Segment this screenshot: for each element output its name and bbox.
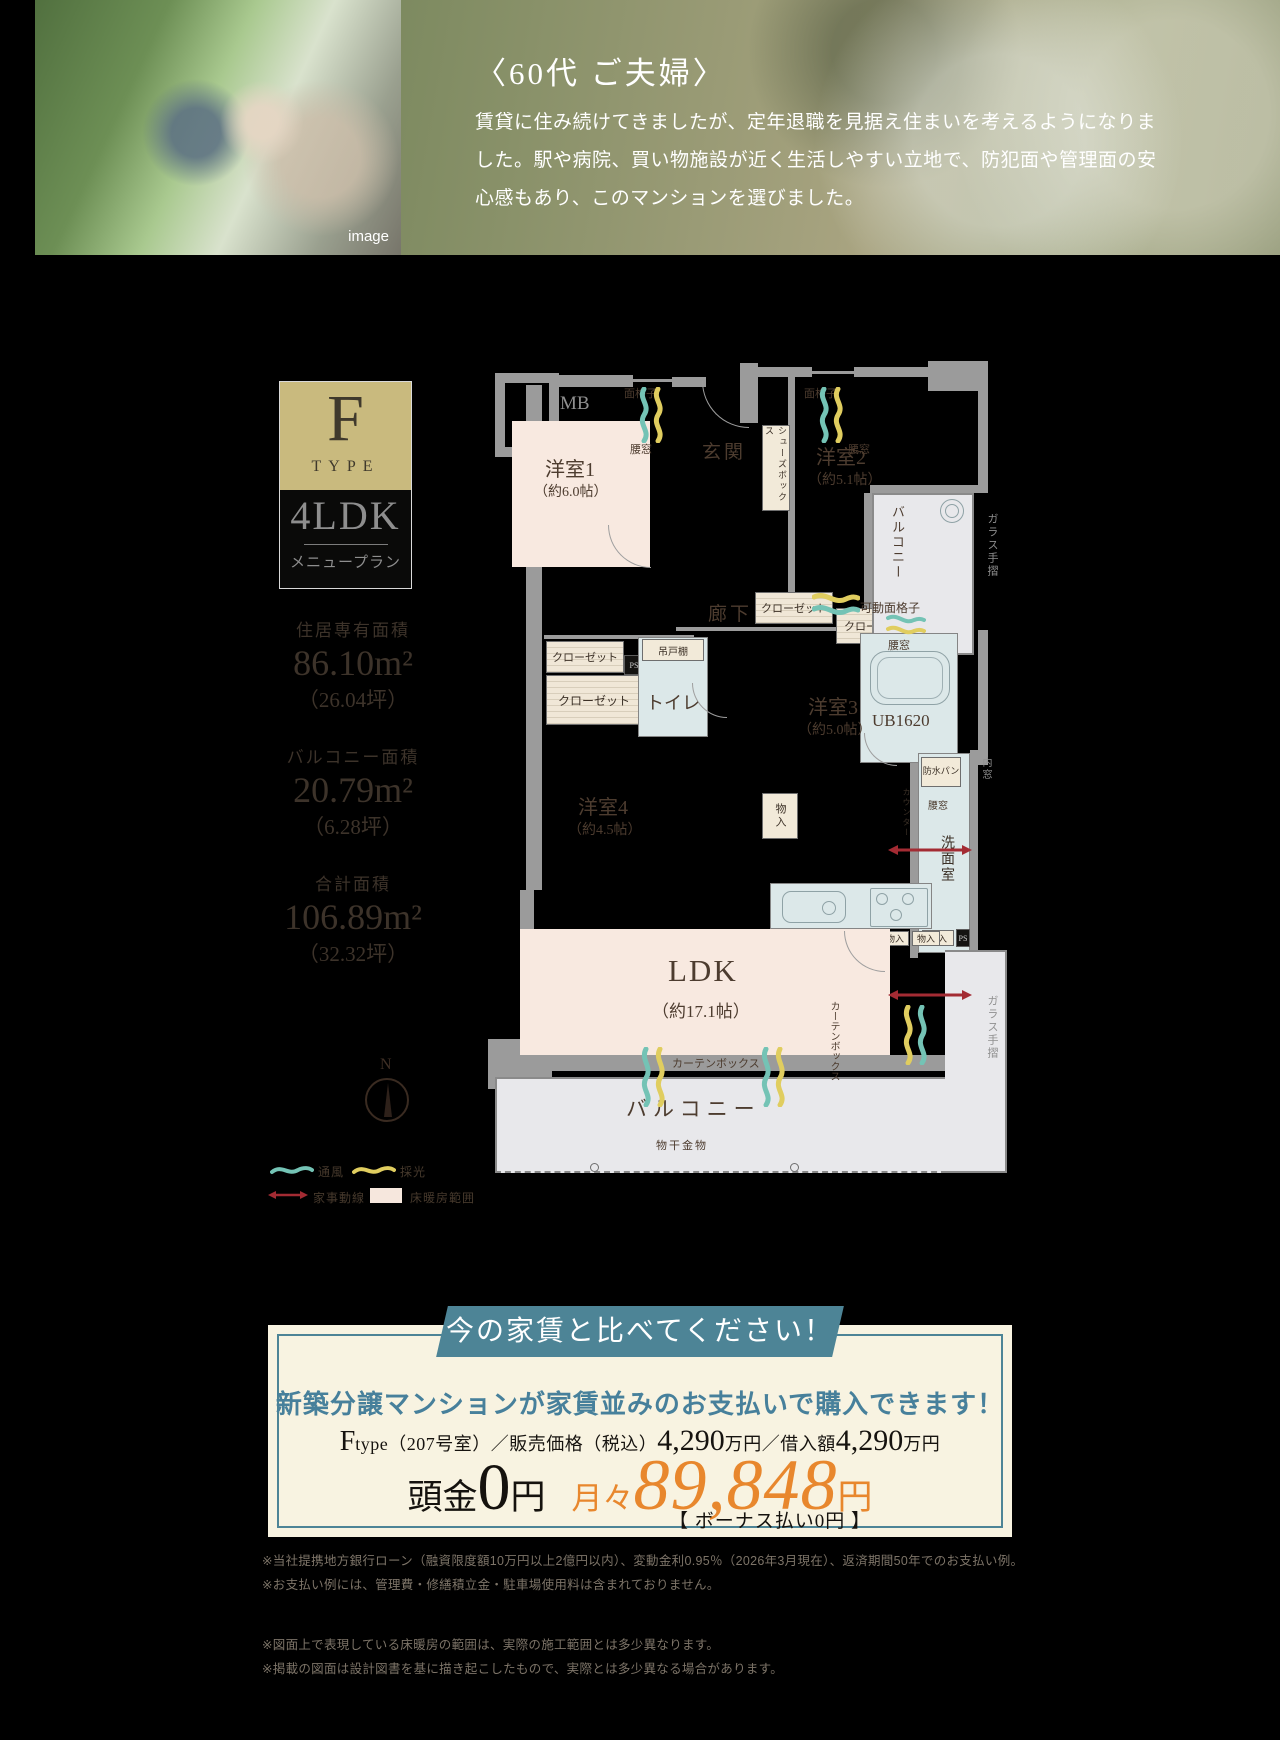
- room4-label: 洋室4: [578, 791, 628, 820]
- window-line: [632, 379, 672, 382]
- floor-plan: 洋室1 （約6.0帖） MB 面格子 腰窓 玄関 シューズボックス 洋室2 （約…: [440, 345, 1085, 1180]
- hero-title: 〈60代 ご夫婦〉: [475, 48, 727, 93]
- wind-wave-icon: [270, 1162, 314, 1178]
- plan-note-line: ※図面上で表現している床暖房の範囲は、実際の施工範囲とは多少異なります。: [262, 1634, 1052, 1658]
- total-area-tsubo: （32.32坪）: [238, 939, 468, 969]
- ldk-size: （約17.1帖）: [652, 997, 750, 1022]
- hallway-label: 廊下: [708, 599, 752, 626]
- housework-arrow-icon: [888, 843, 972, 857]
- burner: [890, 909, 902, 921]
- ldk-label: LDK: [668, 953, 738, 989]
- bath-waist-window-label: 腰窓: [888, 637, 910, 653]
- washroom-waist-window-label: 腰窓: [928, 797, 948, 812]
- total-area-label: 合計面積: [238, 870, 468, 895]
- wind-light-waves-icon: [758, 1047, 788, 1107]
- offer-banner: 今の家賃と比べてください！: [436, 1306, 844, 1357]
- pipe-space: PS: [956, 929, 970, 947]
- exclusive-area-label: 住居専有面積: [238, 616, 468, 641]
- wind-light-waves-icon: [886, 611, 926, 637]
- faucet: [822, 901, 836, 915]
- storage-box: 物入: [912, 931, 940, 946]
- curtain-box-label: カーテンボックス: [672, 1055, 760, 1071]
- wall: [557, 375, 633, 387]
- hanging-shelf: 吊戸棚: [642, 639, 704, 661]
- legend-wind-label: 通風: [318, 1163, 344, 1180]
- type-letter: F: [280, 382, 411, 456]
- flyer-page: image 〈60代 ご夫婦〉 賃貸に住み続けてきましたが、定年退職を見据え住ま…: [0, 0, 1280, 1740]
- washer-symbol-inner: [945, 504, 959, 518]
- floor-heating-swatch: [370, 1188, 402, 1203]
- exclusive-area-tsubo: （26.04坪）: [238, 685, 468, 715]
- kitchen-sink: [782, 891, 846, 923]
- type-badge-gold: F TYPE: [280, 382, 411, 490]
- room3-size: （約5.0帖）: [798, 719, 872, 739]
- down-payment-unit: 円: [510, 1478, 545, 1517]
- compass-north-label: N: [380, 1056, 392, 1074]
- balcony-area-tsubo: （6.28坪）: [238, 812, 468, 842]
- area-figures: 住居専有面積 86.10m² （26.04坪） バルコニー面積 20.79m² …: [238, 616, 468, 997]
- hero-testimonial: 賃貸に住み続けてきましたが、定年退職を見据え住まいを考えるようになりました。駅や…: [475, 104, 1175, 218]
- waist-window-label: 腰窓: [630, 441, 652, 457]
- room1-label: 洋室1: [545, 453, 595, 482]
- burner: [876, 893, 888, 905]
- down-payment-value: 0: [477, 1451, 510, 1524]
- burner: [902, 893, 914, 905]
- unit-bath-label: UB1620: [872, 711, 930, 731]
- legend-housework-label: 家事動線: [313, 1189, 365, 1206]
- wind-light-waves-icon: [812, 589, 860, 617]
- compass-icon: [365, 1078, 409, 1122]
- wall: [672, 377, 706, 387]
- wall: [756, 367, 812, 377]
- plan-layout: 4LDK: [280, 490, 411, 542]
- laundry-hook: [590, 1163, 599, 1172]
- loan-note-line: ※お支払い例には、管理費・修繕積立金・駐車場使用料は含まれておりません。: [262, 1574, 1052, 1598]
- couple-photo: image: [35, 0, 401, 255]
- total-area-value: 106.89m²: [238, 895, 468, 939]
- balcony-area-label: バルコニー面積: [238, 743, 468, 768]
- menu-plan-label: メニュープラン: [280, 551, 411, 572]
- inner-window-label: 内窓: [978, 757, 993, 807]
- door-arc: [702, 381, 749, 428]
- type-badge: F TYPE 4LDK メニュープラン: [279, 381, 412, 589]
- compass-needle-icon: [384, 1083, 392, 1117]
- photo-caption: image: [348, 228, 389, 245]
- loan-notes: ※当社提携地方銀行ローン（融資限度額10万円以上2億円以内）、変動金利0.95％…: [262, 1550, 1052, 1598]
- wall: [978, 361, 988, 493]
- balcony-area-value: 20.79m²: [238, 768, 468, 812]
- bottom-balcony: [495, 1077, 947, 1173]
- badge-divider: [304, 544, 388, 545]
- waist-window-label: 腰窓: [848, 441, 870, 457]
- wall: [870, 485, 982, 493]
- wind-light-waves-icon: [816, 387, 846, 443]
- wall: [676, 627, 846, 631]
- toilet-label: トイレ: [646, 689, 700, 715]
- housework-arrow-icon: [888, 988, 972, 1002]
- offer-headline: 新築分譲マンションが家賃並みのお支払いで購入できます！: [268, 1384, 1012, 1421]
- wind-light-waves-icon: [636, 387, 666, 443]
- daylight-wave-icon: [352, 1162, 396, 1178]
- legend-heating-label: 床暖房範囲: [410, 1189, 475, 1206]
- type-word: TYPE: [280, 458, 411, 476]
- wall: [854, 367, 930, 377]
- room1-size: （約6.0帖）: [534, 481, 608, 501]
- monthly-label: 月々: [572, 1481, 634, 1516]
- closet: クローゼット: [546, 641, 624, 673]
- room3-label: 洋室3: [808, 691, 858, 720]
- down-payment-label: 頭金: [407, 1478, 477, 1517]
- housework-arrow-icon: [268, 1189, 308, 1201]
- glass-handrail-label: ガラス手摺: [984, 513, 1000, 633]
- wind-light-waves-icon: [900, 1005, 930, 1065]
- wall: [978, 630, 988, 765]
- legend-daylight-label: 採光: [400, 1163, 426, 1180]
- bathtub: [870, 651, 950, 705]
- shoe-box: シューズボックス: [762, 425, 790, 511]
- plan-notes: ※図面上で表現している床暖房の範囲は、実際の施工範囲とは多少異なります。 ※掲載…: [262, 1634, 1052, 1682]
- exclusive-area-value: 86.10m²: [238, 641, 468, 685]
- laundry-hardware-label: 物干金物: [656, 1137, 708, 1153]
- counter-label: カウンター: [901, 788, 912, 838]
- mb-label: MB: [560, 393, 590, 415]
- closet: クローゼット: [546, 675, 642, 725]
- storage-box: 物入: [762, 793, 798, 839]
- offer-banner-text: 今の家賃と比べてください！: [442, 1306, 838, 1357]
- wind-light-waves-icon: [638, 1047, 668, 1107]
- room2-size: （約5.1帖）: [808, 469, 882, 489]
- laundry-hook: [790, 1163, 799, 1172]
- loan-note-line: ※当社提携地方銀行ローン（融資限度額10万円以上2億円以内）、変動金利0.95％…: [262, 1550, 1052, 1574]
- waterproof-pan: 防水パン: [921, 757, 961, 787]
- entrance-label: 玄関: [702, 437, 746, 464]
- curtain-box-label-vertical: カーテンボックス: [826, 1001, 841, 1071]
- window-line: [812, 371, 854, 374]
- bonus-payment-note: 【 ボーナス払い0円 】: [640, 1506, 900, 1533]
- room4-size: （約4.5帖）: [568, 819, 642, 839]
- plan-note-line: ※掲載の図面は設計図書を基に描き起こしたもので、実際とは多少異なる場合があります…: [262, 1658, 1052, 1682]
- type-badge-dark: 4LDK メニュープラン: [280, 490, 411, 588]
- glass-handrail-label: ガラス手摺: [984, 995, 1000, 1115]
